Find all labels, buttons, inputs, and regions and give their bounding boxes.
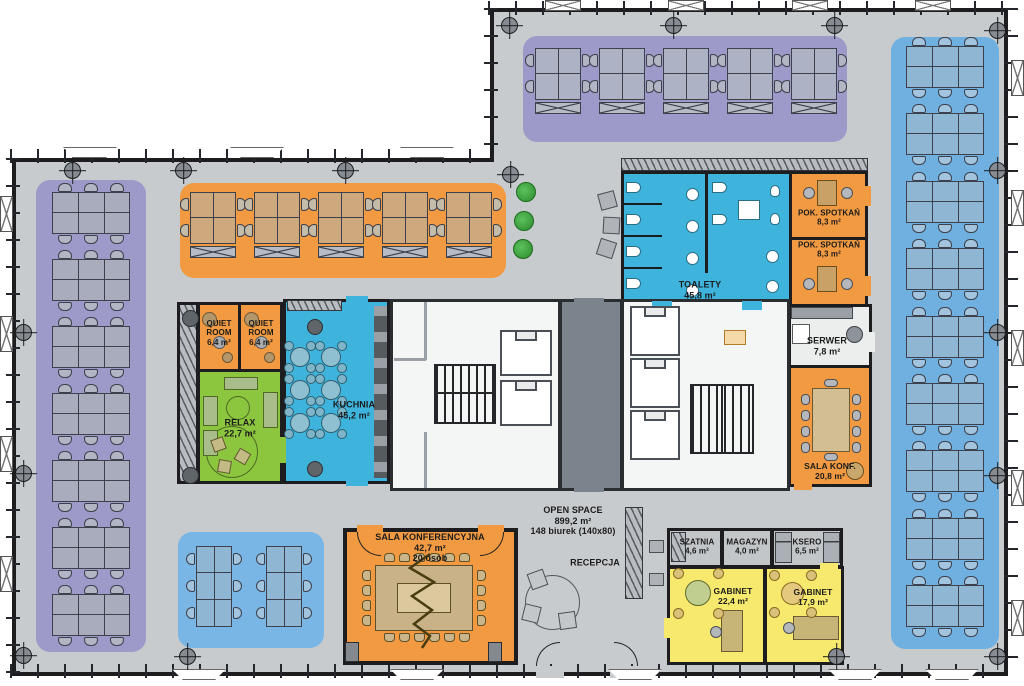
cabinet <box>446 246 492 258</box>
chair <box>912 172 926 181</box>
chair <box>801 394 810 405</box>
chair <box>233 553 242 565</box>
window-icon <box>1011 470 1024 506</box>
chair <box>84 451 98 460</box>
chair <box>964 224 978 233</box>
column-icon <box>15 465 32 482</box>
chair <box>964 441 978 450</box>
vestibule-wall <box>558 302 562 488</box>
chair <box>110 451 124 460</box>
chair <box>58 235 72 244</box>
chair <box>284 374 294 384</box>
chair <box>801 426 810 437</box>
chair <box>110 503 124 512</box>
chair <box>308 224 317 237</box>
cabinet <box>727 102 773 114</box>
column-icon <box>64 162 81 179</box>
chair <box>110 518 124 527</box>
column-icon <box>337 162 354 179</box>
chair <box>58 451 72 460</box>
chair <box>964 239 978 248</box>
chair <box>110 235 124 244</box>
chair <box>964 426 978 435</box>
partition-zigzag <box>400 552 450 650</box>
chair <box>964 156 978 165</box>
chair <box>912 426 926 435</box>
room-label-quiet-2: QUIET ROOM6,4 m² <box>240 319 282 347</box>
chair <box>964 172 978 181</box>
column-round <box>307 461 323 477</box>
chair <box>58 585 72 594</box>
elevator <box>630 410 680 460</box>
desk-block <box>906 181 984 223</box>
desk-block <box>196 546 232 627</box>
desk-block <box>52 594 130 636</box>
room-label-sala-konf: SALA KONF.20,8 m² <box>795 461 865 481</box>
chair <box>284 407 294 417</box>
window-icon <box>545 0 581 11</box>
desk-block <box>52 192 130 234</box>
chair <box>938 561 952 570</box>
door-post <box>488 642 502 662</box>
chair <box>84 503 98 512</box>
chair <box>938 89 952 98</box>
chair <box>436 198 445 211</box>
chair <box>938 441 952 450</box>
chair <box>84 302 98 311</box>
window-icon <box>0 436 13 472</box>
chair <box>58 250 72 259</box>
chair <box>58 503 72 512</box>
room-label-szatnia: SZATNIA4,6 m² <box>672 538 722 557</box>
chair <box>938 291 952 300</box>
desk-block <box>52 259 130 301</box>
core-partition <box>394 358 426 361</box>
chair <box>838 54 847 67</box>
chair <box>806 570 817 581</box>
desk-block <box>906 113 984 155</box>
chair <box>673 568 684 579</box>
chair <box>525 54 534 67</box>
chair <box>964 307 978 316</box>
chair <box>477 585 486 596</box>
room-label-relax: RELAX22,7 m² <box>210 417 270 438</box>
chair <box>801 442 810 453</box>
chair <box>303 607 312 619</box>
chair <box>186 607 195 619</box>
chair <box>84 183 98 192</box>
chair <box>938 359 952 368</box>
chair <box>824 453 838 461</box>
chair <box>372 198 381 211</box>
chair <box>781 80 790 93</box>
chair <box>337 429 347 439</box>
chair <box>180 198 189 211</box>
chair <box>964 628 978 637</box>
chair <box>110 317 124 326</box>
chair <box>436 224 445 237</box>
window-icon <box>792 0 828 11</box>
chair <box>964 89 978 98</box>
room-label-ksero: KSERO6,5 m² <box>784 538 830 557</box>
room-label-serwer: SERWER7,8 m² <box>797 335 857 356</box>
chair <box>362 570 371 581</box>
chair <box>964 561 978 570</box>
chair <box>244 224 253 237</box>
chair <box>84 235 98 244</box>
desk-block <box>190 192 236 244</box>
chair <box>84 518 98 527</box>
desk-block <box>906 316 984 358</box>
chair <box>673 608 684 619</box>
chair <box>938 374 952 383</box>
column-icon <box>15 647 32 664</box>
floor-plan: QUIET ROOM6,4 m² QUIET ROOM6,4 m² RELAX2… <box>0 0 1024 686</box>
chair <box>180 224 189 237</box>
column-round <box>307 319 323 335</box>
desk-block <box>906 46 984 88</box>
cabinet <box>599 102 645 114</box>
chair <box>84 585 98 594</box>
column-round <box>182 310 199 327</box>
chair <box>964 359 978 368</box>
chair <box>58 369 72 378</box>
chair <box>964 104 978 113</box>
elevator <box>630 306 680 356</box>
desk-block <box>254 192 300 244</box>
core-partition <box>424 432 427 488</box>
chair <box>477 615 486 626</box>
chair <box>84 384 98 393</box>
window-icon <box>668 0 704 11</box>
chair <box>938 104 952 113</box>
desk-block <box>906 383 984 425</box>
chair <box>964 37 978 46</box>
chair <box>769 607 780 618</box>
chair <box>110 369 124 378</box>
chair <box>110 570 124 579</box>
chair <box>110 384 124 393</box>
chair <box>938 239 952 248</box>
chair <box>459 633 470 642</box>
chair <box>362 600 371 611</box>
column-icon <box>15 324 32 341</box>
chair <box>58 436 72 445</box>
chair <box>653 54 662 67</box>
chair <box>938 628 952 637</box>
chair <box>233 607 242 619</box>
chair <box>912 156 926 165</box>
vestibule-wall <box>620 302 624 488</box>
chair <box>493 198 502 211</box>
desk-block <box>906 248 984 290</box>
vestibule-door <box>574 484 604 492</box>
chair <box>110 250 124 259</box>
chair <box>337 363 347 373</box>
chair <box>912 239 926 248</box>
chair <box>912 628 926 637</box>
desk-block <box>446 192 492 244</box>
chair <box>912 576 926 585</box>
chair <box>964 374 978 383</box>
cabinet <box>190 246 236 258</box>
desk-block <box>535 48 581 100</box>
chair <box>186 580 195 592</box>
door-post <box>345 642 359 662</box>
cabinet <box>791 102 837 114</box>
chair <box>58 518 72 527</box>
chair <box>912 359 926 368</box>
chair <box>58 637 72 646</box>
chair <box>938 493 952 502</box>
chair <box>315 429 325 439</box>
window-icon <box>1011 190 1024 226</box>
desk-block <box>906 518 984 560</box>
recepcja-label: RECEPCJA <box>560 558 630 569</box>
column-icon <box>828 648 845 665</box>
chair <box>964 291 978 300</box>
chair <box>110 637 124 646</box>
chair <box>110 585 124 594</box>
chair <box>284 363 294 373</box>
chair <box>912 291 926 300</box>
chair <box>337 374 347 384</box>
chair <box>233 580 242 592</box>
chair <box>110 183 124 192</box>
desk-block <box>52 460 130 502</box>
chair <box>362 585 371 596</box>
window-icon <box>0 196 13 232</box>
chair <box>284 429 294 439</box>
chair <box>912 224 926 233</box>
chair <box>84 250 98 259</box>
chair <box>801 410 810 421</box>
window-icon <box>915 0 951 11</box>
chair <box>372 224 381 237</box>
column-icon <box>989 648 1006 665</box>
vestibule-door <box>574 298 604 306</box>
core-cabinet <box>724 330 746 345</box>
window-icon <box>1011 600 1024 636</box>
chair <box>315 341 325 351</box>
chair <box>852 442 861 453</box>
chair <box>525 80 534 93</box>
room-label-gabinet-1: GABINET22,4 m² <box>705 586 761 606</box>
room-label-gabinet-2: GABINET17,9 m² <box>785 587 841 607</box>
desk-block <box>52 326 130 368</box>
chair <box>912 493 926 502</box>
chair <box>912 561 926 570</box>
chair <box>938 509 952 518</box>
chair <box>493 224 502 237</box>
chair <box>912 307 926 316</box>
desk-block <box>791 48 837 100</box>
vestibule <box>562 302 620 488</box>
chair <box>912 374 926 383</box>
window-icon <box>1011 60 1024 96</box>
chair <box>852 394 861 405</box>
chair <box>713 608 724 619</box>
chair <box>852 426 861 437</box>
column-icon <box>501 17 518 34</box>
chair <box>912 89 926 98</box>
room-label-sala-konferencyjna: SALA KONFERENCYJNA42,7 m²20 osób <box>355 532 505 564</box>
column-icon <box>989 22 1006 39</box>
chair <box>964 509 978 518</box>
chair <box>284 341 294 351</box>
stairs-divider <box>721 384 723 454</box>
room-label-kuchnia: KUCHNIA45,2 m² <box>324 399 384 420</box>
chair <box>769 570 780 581</box>
column-icon <box>989 162 1006 179</box>
chair <box>337 341 347 351</box>
column-icon <box>502 166 519 183</box>
chair <box>713 568 724 579</box>
chair <box>912 509 926 518</box>
chair <box>84 637 98 646</box>
column-round <box>182 467 199 484</box>
chair <box>852 410 861 421</box>
chair <box>58 570 72 579</box>
chair <box>717 80 726 93</box>
chair <box>912 104 926 113</box>
stairs-west <box>434 364 496 424</box>
chair <box>58 183 72 192</box>
desk-block <box>727 48 773 100</box>
chair <box>315 374 325 384</box>
chair <box>938 307 952 316</box>
room-label-toalety: TOALETY45,8 m² <box>665 279 735 300</box>
cabinet <box>318 246 364 258</box>
cabinet <box>382 246 428 258</box>
elevator <box>500 380 552 426</box>
desk-block <box>599 48 645 100</box>
desk-block <box>382 192 428 244</box>
desk-block <box>318 192 364 244</box>
chair <box>84 369 98 378</box>
chair <box>84 570 98 579</box>
chair <box>912 37 926 46</box>
chair <box>477 570 486 581</box>
elevator <box>630 358 680 408</box>
room-label-quiet-1: QUIET ROOM6,4 m² <box>198 319 240 347</box>
desk-block <box>663 48 709 100</box>
chair <box>256 553 265 565</box>
core-partition <box>424 302 427 360</box>
chair <box>589 80 598 93</box>
stairs-divider <box>434 392 496 394</box>
chair <box>781 54 790 67</box>
column-icon <box>989 467 1006 484</box>
chair <box>186 553 195 565</box>
room-label-pok-spotkan-2: POK. SPOTKAŃ8,3 m² <box>791 241 867 260</box>
chair <box>244 198 253 211</box>
desk-block <box>266 546 302 627</box>
desk-block <box>906 585 984 627</box>
chair <box>477 600 486 611</box>
chair <box>58 302 72 311</box>
window-icon <box>0 556 13 592</box>
chair <box>938 426 952 435</box>
chair <box>315 363 325 373</box>
chair <box>824 379 838 387</box>
column-icon <box>179 648 196 665</box>
chair <box>256 580 265 592</box>
column-icon <box>175 162 192 179</box>
elevator <box>500 330 552 376</box>
chair <box>110 436 124 445</box>
chair <box>284 396 294 406</box>
column-icon <box>826 17 843 34</box>
chair <box>58 317 72 326</box>
chair <box>84 317 98 326</box>
chair <box>58 384 72 393</box>
chair <box>938 224 952 233</box>
cabinet <box>663 102 709 114</box>
desk-block <box>52 527 130 569</box>
desk-block <box>906 450 984 492</box>
chair <box>717 54 726 67</box>
column-icon <box>665 17 682 34</box>
chair <box>938 37 952 46</box>
desk-block <box>52 393 130 435</box>
chair <box>256 607 265 619</box>
window-icon <box>0 316 13 352</box>
cabinet <box>254 246 300 258</box>
chair <box>964 493 978 502</box>
cabinet <box>535 102 581 114</box>
room-label-magazyn: MAGAZYN4,0 m² <box>721 538 773 557</box>
chair <box>84 436 98 445</box>
chair <box>308 198 317 211</box>
chair <box>964 576 978 585</box>
open-space-label: OPEN SPACE899,2 m²148 biurek (140x80) <box>508 505 638 537</box>
chair <box>938 576 952 585</box>
chair <box>589 54 598 67</box>
window-icon <box>1011 330 1024 366</box>
chair <box>653 80 662 93</box>
chair <box>912 441 926 450</box>
chair <box>303 580 312 592</box>
chair <box>838 80 847 93</box>
chair <box>384 633 395 642</box>
chair <box>938 156 952 165</box>
chair <box>938 172 952 181</box>
column-icon <box>989 324 1006 341</box>
chair <box>362 615 371 626</box>
room-label-pok-spotkan-1: POK. SPOTKAŃ8,3 m² <box>791 209 867 228</box>
chair <box>806 607 817 618</box>
chair <box>110 302 124 311</box>
chair <box>303 553 312 565</box>
